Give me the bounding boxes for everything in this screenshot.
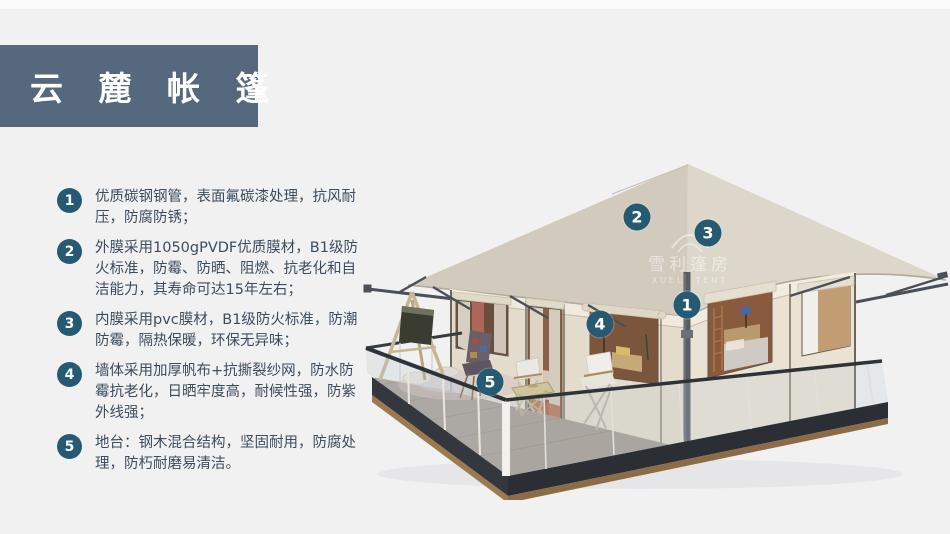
title-banner: 云 麓 帐 篷 bbox=[0, 45, 258, 127]
feature-text-2: 外膜采用1050gPVDF优质膜材，B1级防火标准，防霉、防晒、阻燃、抗老化和自… bbox=[95, 238, 365, 301]
top-strip-decor bbox=[0, 0, 950, 9]
feature-text-5: 地台：钢木混合结构，坚固耐用，防腐处理，防朽耐磨易清洁。 bbox=[95, 433, 365, 475]
feature-item-1: 1 优质碳钢钢管，表面氟碳漆处理，抗风耐压，防腐防锈； bbox=[57, 187, 365, 229]
feature-item-4: 4 墙体采用加厚帆布+抗撕裂纱网，防水防霉抗老化，日晒牢度高，耐候性强，防紫外线… bbox=[57, 361, 365, 424]
feature-item-2: 2 外膜采用1050gPVDF优质膜材，B1级防火标准，防霉、防晒、阻燃、抗老化… bbox=[57, 238, 365, 301]
feature-item-5: 5 地台：钢木混合结构，坚固耐用，防腐处理，防朽耐磨易清洁。 bbox=[57, 433, 365, 475]
feature-badge-1: 1 bbox=[57, 188, 82, 213]
tent-illustration: 雪利篷房 XUELI TENT bbox=[360, 140, 950, 500]
feature-badge-5: 5 bbox=[57, 434, 82, 459]
feature-badge-3: 3 bbox=[57, 311, 82, 336]
page-title: 云 麓 帐 篷 bbox=[0, 62, 280, 110]
page: 云 麓 帐 篷 1 优质碳钢钢管，表面氟碳漆处理，抗风耐压，防腐防锈； 2 外膜… bbox=[0, 0, 950, 534]
feature-item-3: 3 内膜采用pvc膜材，B1级防火标准，防潮防霉，隔热保暖，环保无异味； bbox=[57, 310, 365, 352]
marker-3: 3 bbox=[695, 220, 722, 247]
marker-2: 2 bbox=[624, 204, 651, 231]
feature-badge-2: 2 bbox=[57, 239, 82, 264]
marker-4: 4 bbox=[587, 311, 614, 338]
marker-5: 5 bbox=[477, 369, 504, 396]
feature-list: 1 优质碳钢钢管，表面氟碳漆处理，抗风耐压，防腐防锈； 2 外膜采用1050gP… bbox=[57, 187, 365, 475]
marker-1: 1 bbox=[674, 292, 701, 319]
tent-svg: 雪利篷房 XUELI TENT bbox=[360, 140, 950, 500]
feature-text-3: 内膜采用pvc膜材，B1级防火标准，防潮防霉，隔热保暖，环保无异味； bbox=[95, 310, 365, 352]
feature-text-4: 墙体采用加厚帆布+抗撕裂纱网，防水防霉抗老化，日晒牢度高，耐候性强，防紫外线强； bbox=[95, 361, 365, 424]
feature-text-1: 优质碳钢钢管，表面氟碳漆处理，抗风耐压，防腐防锈； bbox=[95, 187, 365, 229]
feature-badge-4: 4 bbox=[57, 362, 82, 387]
